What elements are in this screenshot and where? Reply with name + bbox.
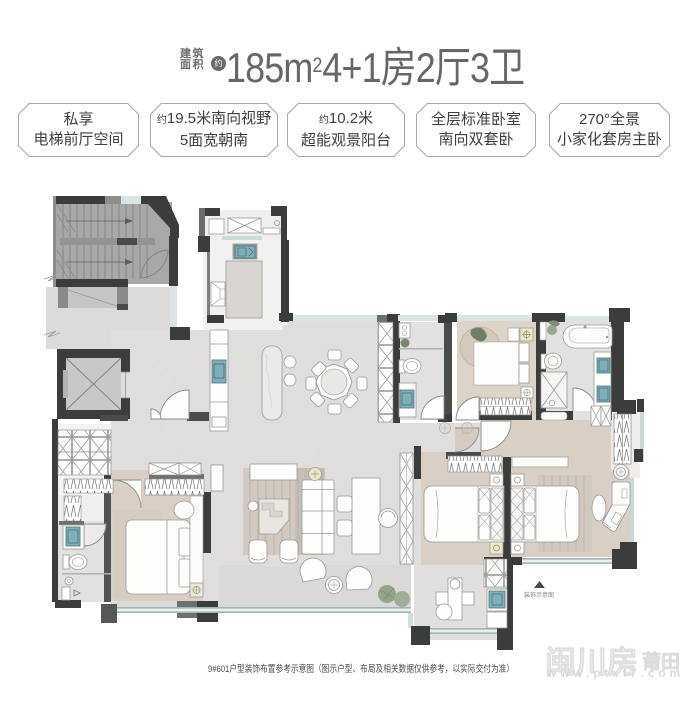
- svg-text:装饰示意图: 装饰示意图: [524, 591, 554, 599]
